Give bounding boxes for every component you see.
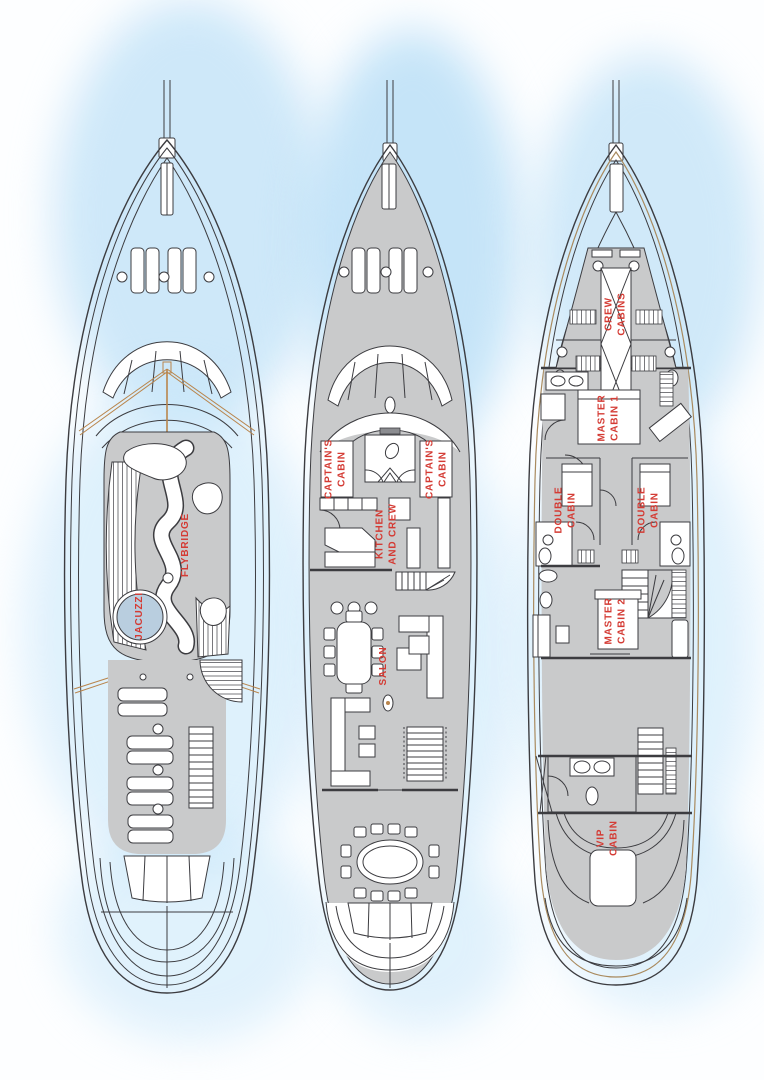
mast bbox=[383, 80, 397, 161]
label-master-cabin-1: MASTER CABIN 1 bbox=[597, 394, 622, 441]
salon-decor bbox=[383, 695, 393, 711]
stern-platform bbox=[100, 856, 234, 988]
cleat bbox=[423, 267, 433, 277]
salon-stairs-down bbox=[404, 727, 446, 781]
cleat bbox=[159, 272, 169, 282]
label-captains-cabin-port: CAPTAIN'S CABIN bbox=[324, 439, 349, 499]
cleat bbox=[117, 272, 127, 282]
label-double-cabin-port: DOUBLE CABIN bbox=[554, 486, 579, 533]
anchor-locker bbox=[382, 164, 396, 209]
cleat bbox=[339, 267, 349, 277]
label-crew-cabins: CREW CABINS bbox=[604, 292, 629, 335]
wheelhouse-bathroom bbox=[365, 435, 415, 482]
engine-room bbox=[546, 660, 686, 754]
label-captains-cabin-starboard: CAPTAIN'S CABIN bbox=[425, 439, 450, 499]
yacht-deck-plans: JACUZZI FLYBRIDGE CAPTAIN'S CABIN CAPTAI… bbox=[0, 0, 764, 1080]
label-jacuzzi: JACUZZI bbox=[134, 592, 147, 640]
label-master-cabin-2: MASTER CABIN 2 bbox=[604, 597, 629, 644]
flybridge-deck-plan bbox=[65, 80, 270, 993]
stern-bench bbox=[326, 902, 454, 988]
label-flybridge: FLYBRIDGE bbox=[180, 513, 193, 577]
anchor-locker bbox=[161, 163, 173, 215]
foredeck-sunpads bbox=[117, 248, 214, 293]
boarding-ladder bbox=[189, 727, 213, 808]
label-kitchen-and-crew: KITCHEN AND CREW bbox=[375, 503, 400, 564]
flybridge-lounge bbox=[104, 432, 230, 662]
label-double-cabin-starboard: DOUBLE CABIN bbox=[637, 486, 662, 533]
mast bbox=[609, 80, 623, 161]
cleat bbox=[204, 272, 214, 282]
label-salon: SALON bbox=[378, 647, 391, 686]
cleat bbox=[381, 267, 391, 277]
label-vip-cabin: VIP CABIN bbox=[596, 820, 621, 856]
